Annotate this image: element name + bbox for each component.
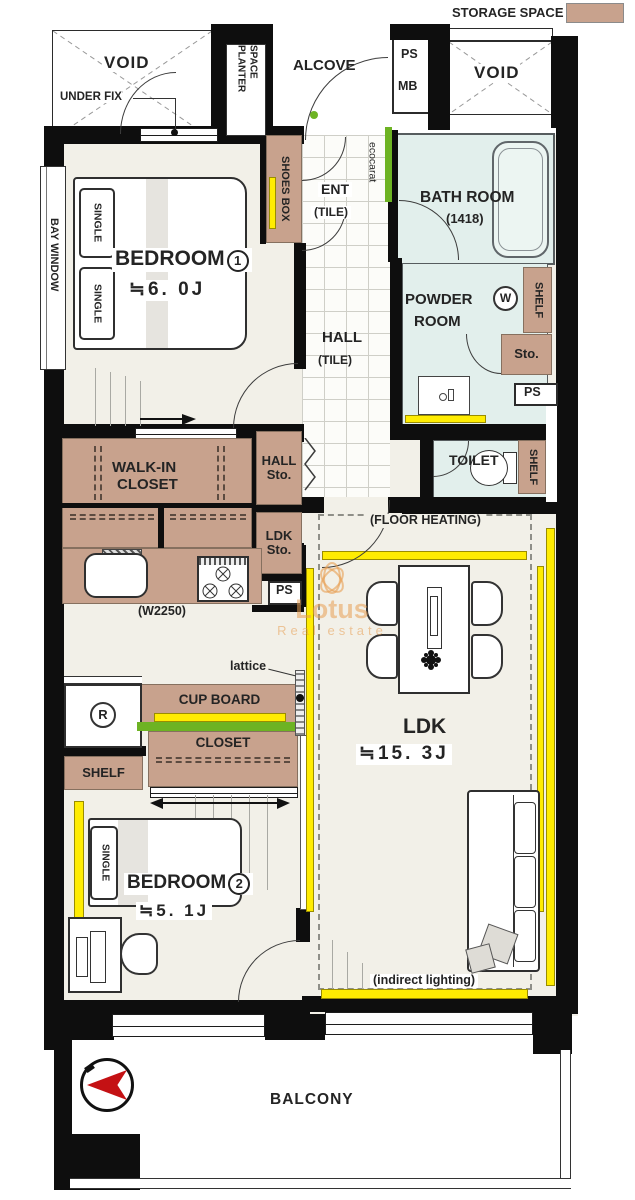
dining-chair [366, 581, 398, 626]
ps-label: PS [524, 386, 541, 400]
void-right-window [448, 28, 553, 41]
ecocarat-dot [310, 111, 318, 119]
hall-label: HALL [322, 330, 362, 346]
bifold-door-icon [303, 438, 317, 492]
dining-chair [366, 634, 398, 679]
indirect-lighting-label: (indirect lighting) [370, 974, 478, 988]
void-right-label: VOID [474, 64, 520, 82]
lattice-screen [295, 670, 305, 736]
planter-space-box: PLANTER SPACE [226, 44, 266, 136]
dining-chair [471, 581, 503, 626]
hall-tile-label: (TILE) [318, 354, 352, 367]
entrance-label: ENT [318, 182, 352, 197]
kitchen-width-label: (W2250) [138, 605, 186, 619]
vanity-sink [418, 376, 470, 415]
alcove-label: ALCOVE [293, 58, 356, 74]
bathroom-label: BATH ROOM [420, 190, 514, 207]
planter-label-1: PLANTER [235, 45, 246, 135]
bedroom2-shelf: SHELF [64, 756, 143, 790]
powder-room-label-2: ROOM [414, 314, 461, 330]
pillow-label: SINGLE [99, 844, 110, 881]
ldk-label: LDK [403, 716, 446, 739]
void-left-label: VOID [104, 54, 150, 72]
highlight-bar [405, 415, 486, 423]
kitchen-sink [84, 553, 148, 598]
hanger-rail [156, 757, 290, 763]
wall-right [556, 112, 578, 1014]
pillow: SINGLE [90, 826, 118, 900]
balcony-railing [70, 1178, 571, 1189]
powder-room-label-1: POWDER [405, 292, 473, 308]
bay-window-label: BAY WINDOW [47, 218, 59, 291]
dining-table [398, 565, 470, 694]
under-fix-label: UNDER FIX [60, 91, 122, 103]
pillow: SINGLE [79, 267, 115, 340]
shoes-box-label: SHOES BOX [278, 156, 290, 221]
hanger-rail [94, 446, 102, 500]
storage-legend-swatch [566, 3, 624, 23]
floor-heating-label: (FLOOR HEATING) [366, 514, 485, 528]
toilet-shelf: SHELF [518, 440, 546, 494]
ecocarat-bar [137, 722, 301, 731]
ldk-window [325, 1012, 533, 1035]
hall-storage: HALL Sto. [256, 431, 302, 505]
balcony-railing [560, 1050, 571, 1188]
ps-label: PS [276, 584, 293, 598]
bedroom1-size: ≒6. 0J [126, 280, 208, 301]
bathroom-size-label: (1418) [446, 212, 484, 226]
balcony-label: BALCONY [270, 1092, 354, 1109]
toilet-label: TOILET [449, 453, 499, 468]
entrance-tile-label: (TILE) [311, 206, 351, 219]
floor-plan: STORAGE SPACE VOID UNDER FIX PLANTER SPA… [0, 0, 635, 1200]
dining-chair [471, 634, 503, 679]
compass-icon [80, 1058, 134, 1112]
highlight-bar [321, 989, 528, 999]
refrigerator-icon: R [90, 702, 116, 728]
shelf-label: SHELF [82, 766, 125, 780]
flower-icon [426, 655, 436, 665]
burner-icon [199, 565, 247, 601]
wall-left [44, 366, 64, 1050]
washing-machine-icon: W [493, 286, 518, 311]
desk [68, 917, 122, 993]
mb-label: MB [398, 80, 417, 94]
powder-shelf: SHELF [523, 267, 552, 333]
highlight-bar [154, 713, 286, 722]
pillow-label: SINGLE [91, 203, 102, 242]
slide-arrow-icon [138, 413, 196, 426]
pillow: SINGLE [79, 188, 115, 258]
wic-label-1: WALK-IN [112, 460, 176, 476]
highlight-bar [269, 177, 276, 229]
bedroom1-label: BEDROOM1 [112, 248, 252, 272]
lattice-label: lattice [230, 660, 266, 674]
wic-label-2: CLOSET [117, 477, 178, 493]
hanger-rail [70, 514, 154, 520]
powder-storage: Sto. [501, 334, 552, 375]
bedroom2-label: BEDROOM2 [124, 873, 253, 895]
planter-label-2: SPACE [247, 45, 258, 135]
door-hinge-dot [171, 129, 178, 136]
hanger-rail [217, 446, 225, 500]
ps-label: PS [401, 48, 418, 62]
pillow-label: SINGLE [91, 284, 102, 323]
bedroom2-window [112, 1014, 265, 1037]
hanger-rail [170, 514, 246, 520]
under-fix-pointer [133, 98, 175, 99]
highlight-bar [546, 528, 555, 986]
ecocarat-label: ecocarat [366, 142, 377, 182]
ldk-size: ≒15. 3J [356, 744, 452, 765]
sto-label: Sto. [514, 347, 539, 361]
shelf-label: SHELF [532, 282, 544, 318]
desk-chair [120, 933, 158, 975]
storage-legend-label: STORAGE SPACE [452, 6, 563, 20]
slide-arrow-icon [150, 797, 290, 810]
shelf-label: SHELF [526, 449, 538, 485]
room-number: 2 [228, 873, 250, 895]
room-number: 1 [227, 250, 249, 272]
ldk-storage: LDK Sto. [256, 512, 302, 574]
stove [197, 556, 249, 602]
bedroom2-size: ≒5. 1J [136, 902, 212, 920]
highlight-bar [306, 568, 314, 912]
